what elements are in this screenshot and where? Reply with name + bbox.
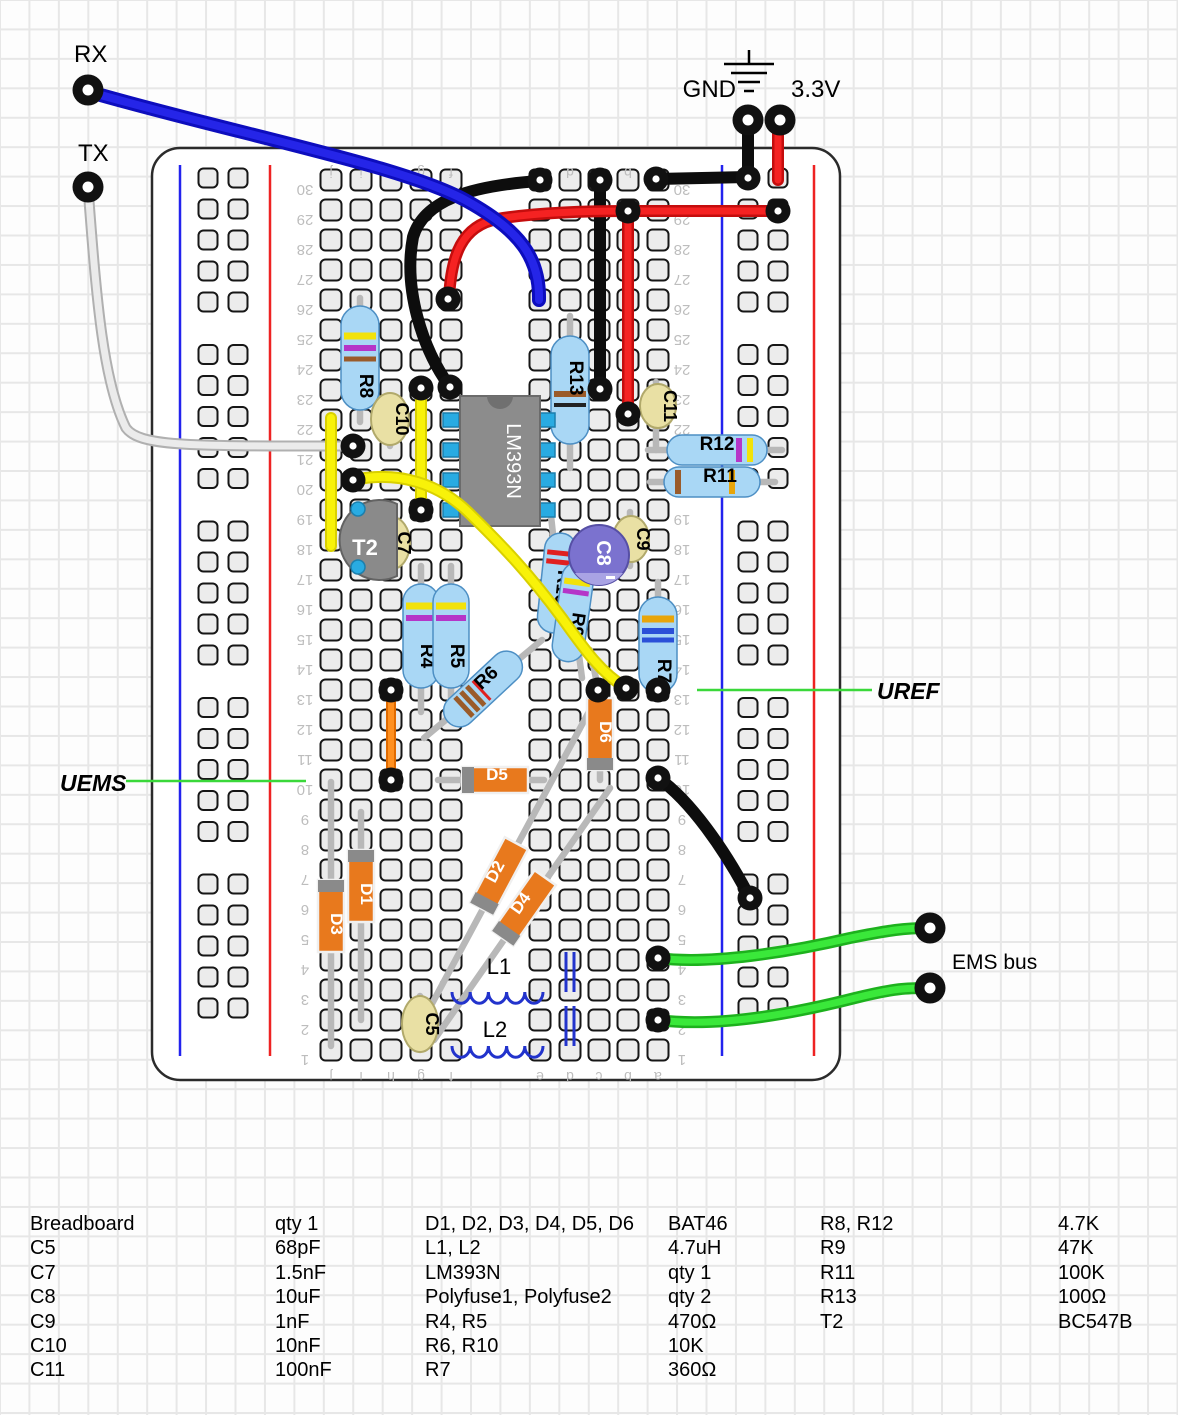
breadboard-hole	[381, 860, 402, 881]
rail-hole	[229, 615, 248, 634]
part-name: R13	[820, 1286, 857, 1308]
row-number: 28	[297, 241, 314, 258]
resistor-band	[436, 615, 466, 621]
part-name: R11	[820, 1262, 855, 1284]
ic-pin	[539, 443, 555, 457]
breadboard-hole	[530, 710, 551, 731]
breadboard-hole	[351, 740, 372, 761]
wire-connection-hole	[387, 686, 394, 693]
breadboard-hole	[648, 290, 669, 311]
breadboard-hole	[381, 650, 402, 671]
rail-hole	[739, 293, 758, 312]
rail-hole	[769, 698, 788, 717]
parts-list-entry: C1010nF	[30, 1334, 135, 1358]
breadboard-hole	[351, 260, 372, 281]
breadboard-hole	[321, 680, 342, 701]
breadboard-hole	[381, 920, 402, 941]
breadboard-hole	[381, 290, 402, 311]
breadboard-hole	[321, 260, 342, 281]
breadboard-hole	[381, 890, 402, 911]
row-number: 4	[301, 961, 309, 978]
part-name: C8	[30, 1286, 56, 1308]
rail-hole	[199, 293, 218, 312]
rail-hole	[739, 553, 758, 572]
rail-hole	[229, 937, 248, 956]
row-number: 2	[301, 1021, 309, 1038]
transistor-label: T2	[352, 535, 378, 560]
row-number: 28	[674, 241, 691, 258]
resistor-label: R12	[700, 434, 735, 455]
part-name: R8, R12	[820, 1213, 893, 1235]
rail-hole	[769, 376, 788, 395]
rail-hole	[229, 293, 248, 312]
resistor-label: R13	[565, 361, 586, 396]
breadboard-hole	[351, 590, 372, 611]
row-number: 12	[674, 721, 691, 738]
rail-hole	[769, 968, 788, 987]
part-name: Breadboard	[30, 1213, 135, 1235]
breadboard-hole	[321, 200, 342, 221]
part-name: R6, R10	[425, 1335, 498, 1357]
ic-body	[460, 396, 540, 526]
breadboard-hole	[530, 680, 551, 701]
parts-list-entry: R4, R5470Ω	[425, 1310, 634, 1334]
part-name: R9	[820, 1237, 846, 1259]
resistor-band	[642, 616, 674, 623]
rail-hole	[739, 760, 758, 779]
row-number: 24	[297, 361, 314, 378]
part-name: C9	[30, 1311, 56, 1333]
page: 1122334455667788991010111112121313141415…	[0, 0, 1178, 1415]
rx-label: RX	[74, 41, 107, 68]
row-number: 19	[297, 511, 314, 528]
parts-list-entry: D1, D2, D3, D4, D5, D6BAT46	[425, 1212, 634, 1236]
parts-list-entry: L1, L24.7uH	[425, 1236, 634, 1260]
ic-pin	[539, 413, 555, 427]
parts-list-column-3: R8, R124.7KR947KR11100KR13100ΩT2BC547B	[820, 1212, 893, 1334]
row-number: 21	[297, 451, 314, 468]
parts-list-entry: LM393Nqty 1	[425, 1261, 634, 1285]
breadboard-hole	[648, 500, 669, 521]
diode-band	[587, 758, 613, 770]
breadboard-body	[152, 148, 840, 1080]
breadboard-hole	[648, 260, 669, 281]
wire-connection-hole	[596, 385, 603, 392]
breadboard-hole	[381, 1040, 402, 1061]
resistor-body	[433, 584, 469, 688]
wire-connection-hole	[349, 476, 356, 483]
resistor-band	[406, 603, 436, 610]
rail-hole	[769, 407, 788, 426]
resistor-band	[344, 333, 376, 340]
part-value: qty 2	[668, 1285, 711, 1309]
rail-hole	[199, 584, 218, 603]
breadboard-hole	[648, 320, 669, 341]
row-number: 17	[674, 571, 691, 588]
parts-list-column-1: Breadboardqty 1C568pFC71.5nFC810uFC91nFC…	[30, 1212, 135, 1383]
column-letter: a	[654, 1069, 662, 1085]
row-number: 27	[297, 271, 314, 288]
row-number: 20	[297, 481, 314, 498]
breadboard-hole	[351, 680, 372, 701]
inductor-label: L1	[487, 954, 511, 979]
parts-list-entry: R13100Ω	[820, 1285, 893, 1309]
rail-hole	[769, 822, 788, 841]
breadboard-hole	[589, 410, 610, 431]
rail-hole	[739, 791, 758, 810]
wire-connection-hole	[536, 176, 543, 183]
rail-hole	[229, 231, 248, 250]
minus-mark	[606, 576, 615, 579]
part-value: 10K	[668, 1334, 704, 1358]
breadboard-hole	[589, 620, 610, 641]
column-letter: f	[449, 165, 453, 181]
capacitor-label: C11	[660, 390, 680, 422]
uems-label: UEMS	[60, 770, 127, 796]
rail-hole	[199, 968, 218, 987]
breadboard-hole	[411, 890, 432, 911]
wire-connection-hole	[349, 442, 356, 449]
resistor-band	[344, 345, 376, 351]
breadboard-hole	[648, 800, 669, 821]
row-number: 14	[297, 661, 314, 678]
row-number: 15	[297, 631, 314, 648]
part-name: C11	[30, 1359, 65, 1381]
breadboard-hole	[560, 950, 581, 971]
ic-pin	[539, 473, 555, 487]
breadboard-diagram: 1122334455667788991010111112121313141415…	[0, 0, 1178, 1180]
rail-hole	[229, 200, 248, 219]
rx-terminal-hole	[83, 85, 94, 96]
row-number: 27	[674, 271, 691, 288]
wire-connection-hole	[746, 894, 753, 901]
breadboard-hole	[560, 230, 581, 251]
resistor-band	[436, 603, 466, 610]
breadboard-hole	[441, 740, 462, 761]
diode-band	[348, 850, 374, 862]
part-name: L1, L2	[425, 1237, 481, 1259]
row-number: 16	[297, 601, 314, 618]
v33-terminal-hole	[775, 115, 786, 126]
capacitor-label: C8	[592, 540, 614, 566]
diode-band	[462, 767, 474, 793]
breadboard-hole	[648, 860, 669, 881]
inductor-label: L2	[483, 1017, 507, 1042]
rail-hole	[769, 553, 788, 572]
breadboard-hole	[648, 890, 669, 911]
rail-hole	[229, 469, 248, 488]
row-number: 3	[678, 991, 686, 1008]
breadboard-hole	[618, 890, 639, 911]
rail-hole	[229, 646, 248, 665]
breadboard-hole	[441, 800, 462, 821]
breadboard-hole	[618, 860, 639, 881]
part-name: T2	[820, 1311, 843, 1333]
breadboard-hole	[381, 590, 402, 611]
parts-list-entry: R947K	[820, 1236, 893, 1260]
capacitor-label: C9	[633, 527, 653, 550]
part-name: LM393N	[425, 1262, 501, 1284]
rail-hole	[229, 875, 248, 894]
breadboard-hole	[530, 920, 551, 941]
row-number: 23	[297, 391, 314, 408]
breadboard-hole	[560, 1010, 581, 1031]
breadboard-hole	[530, 740, 551, 761]
resistor-label: R5	[446, 644, 467, 669]
breadboard-hole	[321, 650, 342, 671]
parts-list-entry: C810uF	[30, 1285, 135, 1309]
part-value: 68pF	[275, 1236, 321, 1260]
ic-pin	[443, 413, 459, 427]
rail-hole	[769, 615, 788, 634]
ic-pin	[443, 473, 459, 487]
rail-hole	[769, 791, 788, 810]
resistor-band	[344, 357, 376, 362]
breadboard-hole	[411, 950, 432, 971]
wire-connection-hole	[654, 954, 661, 961]
part-value: qty 1	[668, 1261, 711, 1285]
rail-hole	[229, 729, 248, 748]
rail-hole	[739, 698, 758, 717]
breadboard-hole	[381, 350, 402, 371]
breadboard-hole	[618, 950, 639, 971]
breadboard-hole	[351, 200, 372, 221]
breadboard-hole	[589, 830, 610, 851]
row-number: 18	[297, 541, 314, 558]
rail-hole	[739, 615, 758, 634]
rail-hole	[739, 968, 758, 987]
rail-hole	[229, 968, 248, 987]
rail-hole	[229, 760, 248, 779]
wire-connection-hole	[417, 506, 424, 513]
parts-list-entry: C568pF	[30, 1236, 135, 1260]
breadboard-hole	[560, 1040, 581, 1061]
rail-hole	[229, 345, 248, 364]
wire-connection-hole	[594, 686, 601, 693]
resistor-R12: R12	[667, 434, 767, 465]
row-number: 29	[297, 211, 314, 228]
breadboard-hole	[530, 950, 551, 971]
diode-D6: D6	[587, 698, 615, 770]
wire-connection-hole	[652, 175, 659, 182]
breadboard-hole	[321, 350, 342, 371]
rail-hole	[229, 407, 248, 426]
breadboard-hole	[589, 440, 610, 461]
breadboard-hole	[381, 230, 402, 251]
breadboard-hole	[441, 860, 462, 881]
breadboard-hole	[648, 830, 669, 851]
rail-hole	[229, 698, 248, 717]
breadboard-hole	[648, 980, 669, 1001]
part-name: C5	[30, 1237, 56, 1259]
column-letter: b	[624, 165, 632, 181]
resistor-R11: R11	[664, 466, 760, 497]
resistor-R8: R8	[341, 306, 379, 410]
breadboard-hole	[618, 590, 639, 611]
breadboard-hole	[648, 1040, 669, 1061]
column-letter: c	[596, 1069, 603, 1085]
breadboard-hole	[530, 320, 551, 341]
breadboard-hole	[589, 860, 610, 881]
rail-hole	[769, 875, 788, 894]
breadboard-hole	[411, 770, 432, 791]
column-letter: f	[449, 1069, 453, 1085]
breadboard-hole	[560, 920, 581, 941]
breadboard-hole	[589, 920, 610, 941]
resistor-band	[642, 638, 674, 643]
wire-connection-hole	[654, 1016, 661, 1023]
resistor-label: R8	[355, 374, 376, 398]
rail-hole	[229, 553, 248, 572]
row-number: 26	[297, 301, 314, 318]
column-letter: i	[359, 1069, 362, 1085]
breadboard-hole	[560, 860, 581, 881]
diode-D5: D5	[462, 765, 528, 793]
breadboard-hole	[589, 950, 610, 971]
part-value: 100Ω	[1058, 1285, 1106, 1309]
breadboard-hole	[589, 1010, 610, 1031]
wire-connection-hole	[417, 384, 424, 391]
part-name: D1, D2, D3, D4, D5, D6	[425, 1213, 634, 1235]
rail-hole	[739, 231, 758, 250]
rail-hole	[229, 522, 248, 541]
row-number: 24	[674, 361, 691, 378]
ems-terminal-1-hole	[925, 923, 936, 934]
row-number: 13	[297, 691, 314, 708]
breadboard-hole	[648, 560, 669, 581]
breadboard-hole	[381, 950, 402, 971]
column-letter: d	[566, 165, 574, 181]
breadboard-hole	[411, 800, 432, 821]
part-value: 4.7K	[1058, 1212, 1099, 1236]
rail-hole	[229, 822, 248, 841]
ic-pin	[539, 503, 555, 517]
row-number: 11	[297, 751, 313, 768]
row-number: 13	[674, 691, 691, 708]
parts-list-column-2: D1, D2, D3, D4, D5, D6BAT46L1, L24.7uHLM…	[425, 1212, 634, 1383]
rail-hole	[739, 376, 758, 395]
breadboard-hole	[648, 230, 669, 251]
row-number: 12	[297, 721, 314, 738]
row-number: 22	[297, 421, 314, 438]
breadboard-hole	[381, 320, 402, 341]
rail-hole	[199, 522, 218, 541]
diode-band	[318, 880, 344, 892]
breadboard-hole	[618, 440, 639, 461]
breadboard-hole	[321, 710, 342, 731]
wire-connection-hole	[624, 410, 631, 417]
rail-hole	[229, 376, 248, 395]
rail-hole	[769, 262, 788, 281]
wire-connection-hole	[624, 207, 631, 214]
parts-list-entry: R6, R1010K	[425, 1334, 634, 1358]
resistor-band	[554, 403, 586, 407]
rail-hole	[199, 407, 218, 426]
row-number: 17	[297, 571, 314, 588]
breadboard-hole	[618, 830, 639, 851]
diode-D1: D1	[348, 850, 376, 922]
row-number: 25	[297, 331, 314, 348]
part-name: R7	[425, 1359, 451, 1381]
breadboard-hole	[351, 230, 372, 251]
diode-label: D3	[327, 913, 346, 935]
rail-hole	[739, 729, 758, 748]
rail-hole	[199, 791, 218, 810]
column-letter: h	[387, 1069, 395, 1085]
breadboard-hole	[381, 800, 402, 821]
rail-hole	[769, 522, 788, 541]
breadboard-hole	[560, 800, 581, 821]
column-letter: e	[536, 1069, 544, 1085]
parts-list-entry: R8, R124.7K	[820, 1212, 893, 1236]
breadboard-hole	[321, 230, 342, 251]
part-value: BAT46	[668, 1212, 728, 1236]
parts-list-entry: C91nF	[30, 1310, 135, 1334]
row-number: 26	[674, 301, 691, 318]
breadboard-hole	[530, 980, 551, 1001]
breadboard-hole	[441, 320, 462, 341]
breadboard-hole	[351, 650, 372, 671]
rail-hole	[199, 169, 218, 188]
row-number: 9	[678, 811, 686, 828]
rail-hole	[739, 646, 758, 665]
resistor-band	[747, 438, 753, 462]
row-number: 8	[301, 841, 309, 858]
breadboard-hole	[381, 830, 402, 851]
row-number: 9	[301, 811, 309, 828]
rail-hole	[199, 262, 218, 281]
ems-terminal-2-hole	[925, 983, 936, 994]
breadboard-hole	[589, 500, 610, 521]
rail-hole	[229, 262, 248, 281]
breadboard-hole	[441, 830, 462, 851]
diode-label: D5	[486, 765, 508, 784]
breadboard-hole	[381, 260, 402, 281]
wire-connection-hole	[744, 174, 751, 181]
breadboard-hole	[560, 290, 581, 311]
breadboard-hole	[530, 350, 551, 371]
resistor-band	[406, 615, 436, 621]
breadboard-hole	[321, 320, 342, 341]
breadboard-hole	[560, 260, 581, 281]
breadboard-hole	[560, 680, 581, 701]
breadboard-hole	[441, 890, 462, 911]
breadboard-hole	[589, 1040, 610, 1061]
breadboard-hole	[648, 740, 669, 761]
ic-pin	[443, 443, 459, 457]
breadboard-hole	[618, 1010, 639, 1031]
row-number: 3	[301, 991, 309, 1008]
row-number: 1	[301, 1051, 309, 1068]
breadboard-hole	[411, 860, 432, 881]
row-number: 6	[678, 901, 686, 918]
breadboard-hole	[589, 890, 610, 911]
ic-label: LM393N	[502, 423, 524, 499]
rail-hole	[739, 345, 758, 364]
rail-hole	[769, 345, 788, 364]
breadboard-hole	[321, 620, 342, 641]
rail-hole	[199, 646, 218, 665]
capacitor-label: C10	[392, 402, 412, 435]
breadboard-hole	[321, 740, 342, 761]
row-number: 1	[678, 1051, 686, 1068]
breadboard-hole	[618, 1040, 639, 1061]
part-name: C10	[30, 1335, 67, 1357]
rail-hole	[229, 791, 248, 810]
rail-hole	[769, 906, 788, 925]
rail-hole	[739, 407, 758, 426]
gnd-label: GND	[683, 76, 736, 103]
